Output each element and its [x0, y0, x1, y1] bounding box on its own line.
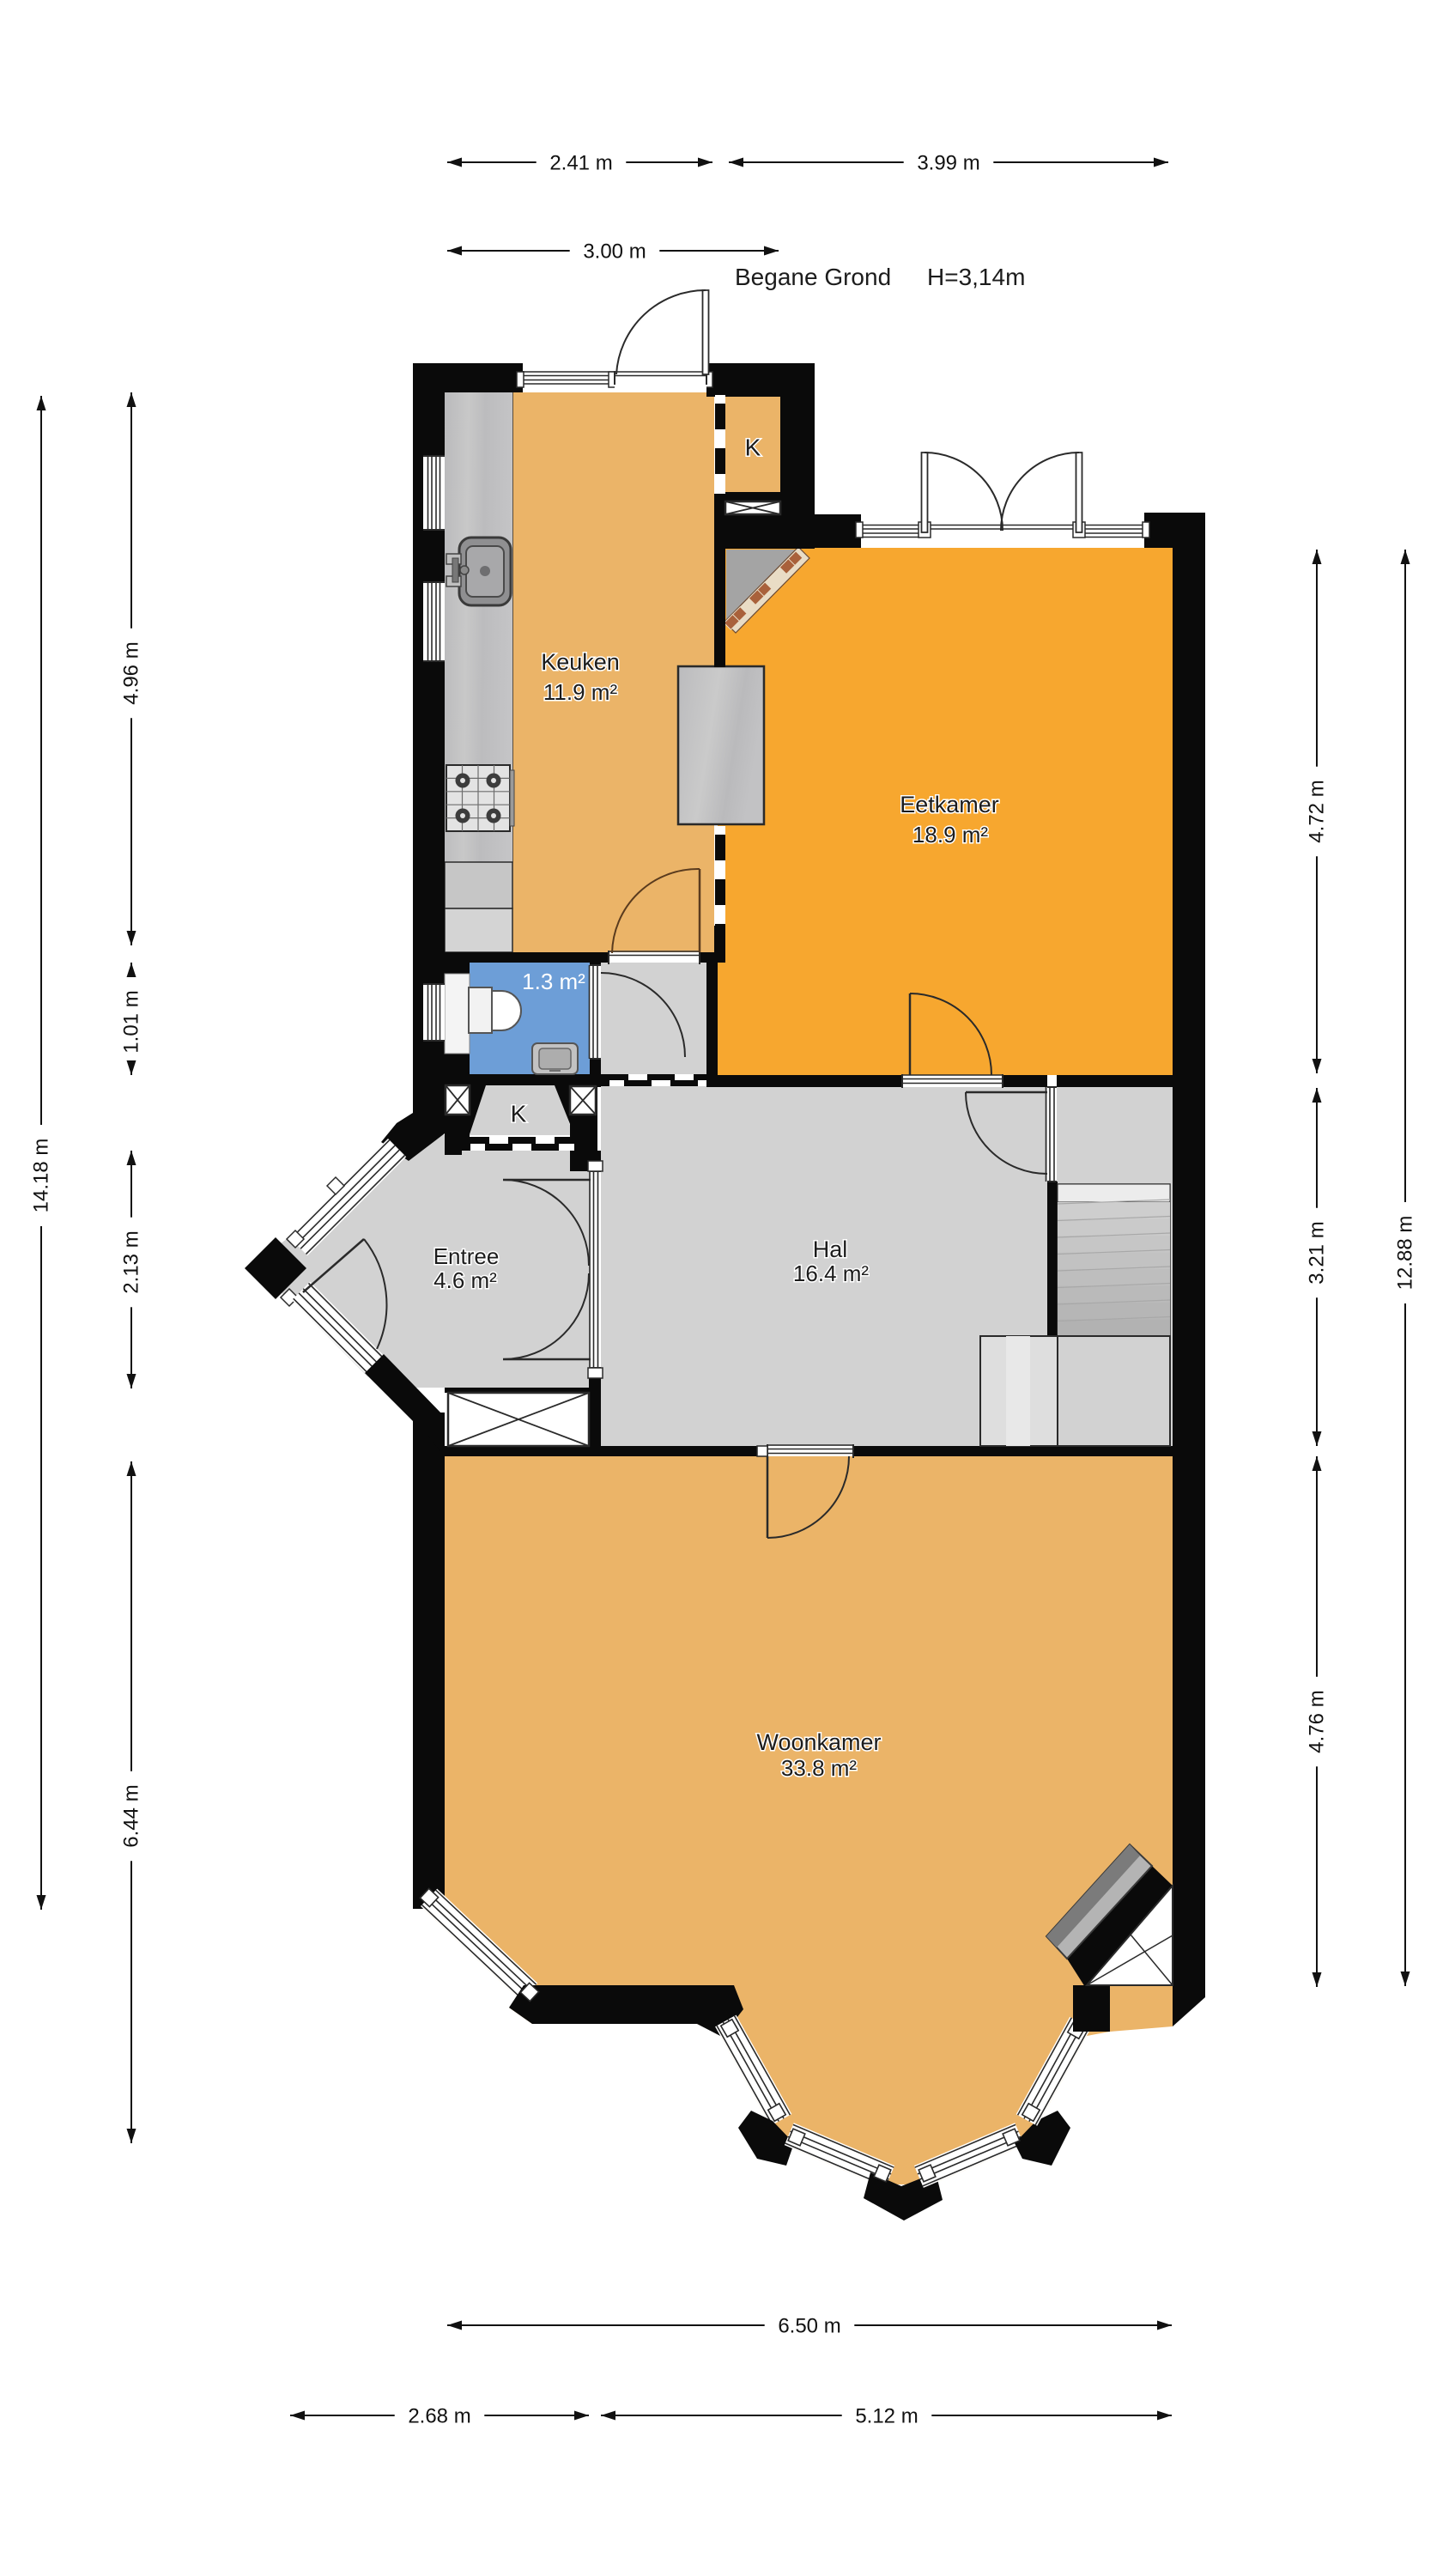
svg-text:2.68 m: 2.68 m — [408, 2404, 470, 2427]
svg-text:3.21 m: 3.21 m — [1306, 1221, 1329, 1284]
svg-text:6.50 m: 6.50 m — [778, 2314, 840, 2337]
svg-text:Entree: Entree — [433, 1243, 500, 1269]
svg-text:Woonkamer: Woonkamer — [756, 1729, 881, 1755]
svg-text:6.44 m: 6.44 m — [120, 1784, 143, 1847]
svg-text:2.41 m: 2.41 m — [549, 151, 612, 174]
svg-text:K: K — [511, 1101, 527, 1127]
svg-text:Begane Grond: Begane Grond — [735, 264, 891, 290]
svg-text:4.72 m: 4.72 m — [1306, 780, 1329, 842]
svg-text:11.9 m²: 11.9 m² — [543, 679, 618, 705]
svg-text:2.13 m: 2.13 m — [120, 1230, 143, 1293]
svg-text:12.88 m: 12.88 m — [1394, 1216, 1417, 1291]
svg-text:Keuken: Keuken — [541, 649, 620, 675]
svg-text:16.4 m²: 16.4 m² — [793, 1261, 869, 1286]
svg-text:K: K — [745, 434, 761, 461]
svg-text:3.00 m: 3.00 m — [583, 240, 646, 263]
svg-text:4.96 m: 4.96 m — [120, 641, 143, 704]
svg-text:4.6 m²: 4.6 m² — [433, 1267, 497, 1293]
svg-text:1.01 m: 1.01 m — [120, 990, 143, 1053]
svg-text:5.12 m: 5.12 m — [855, 2404, 918, 2427]
svg-text:33.8 m²: 33.8 m² — [781, 1755, 857, 1781]
svg-text:Hal: Hal — [813, 1236, 848, 1262]
svg-text:3.99 m: 3.99 m — [917, 151, 979, 174]
svg-text:H=3,14m: H=3,14m — [927, 264, 1025, 290]
svg-text:Eetkamer: Eetkamer — [900, 792, 999, 817]
svg-text:14.18 m: 14.18 m — [30, 1139, 53, 1213]
svg-text:4.76 m: 4.76 m — [1306, 1690, 1329, 1753]
svg-text:18.9 m²: 18.9 m² — [912, 822, 988, 848]
svg-text:1.3 m²: 1.3 m² — [522, 969, 585, 994]
